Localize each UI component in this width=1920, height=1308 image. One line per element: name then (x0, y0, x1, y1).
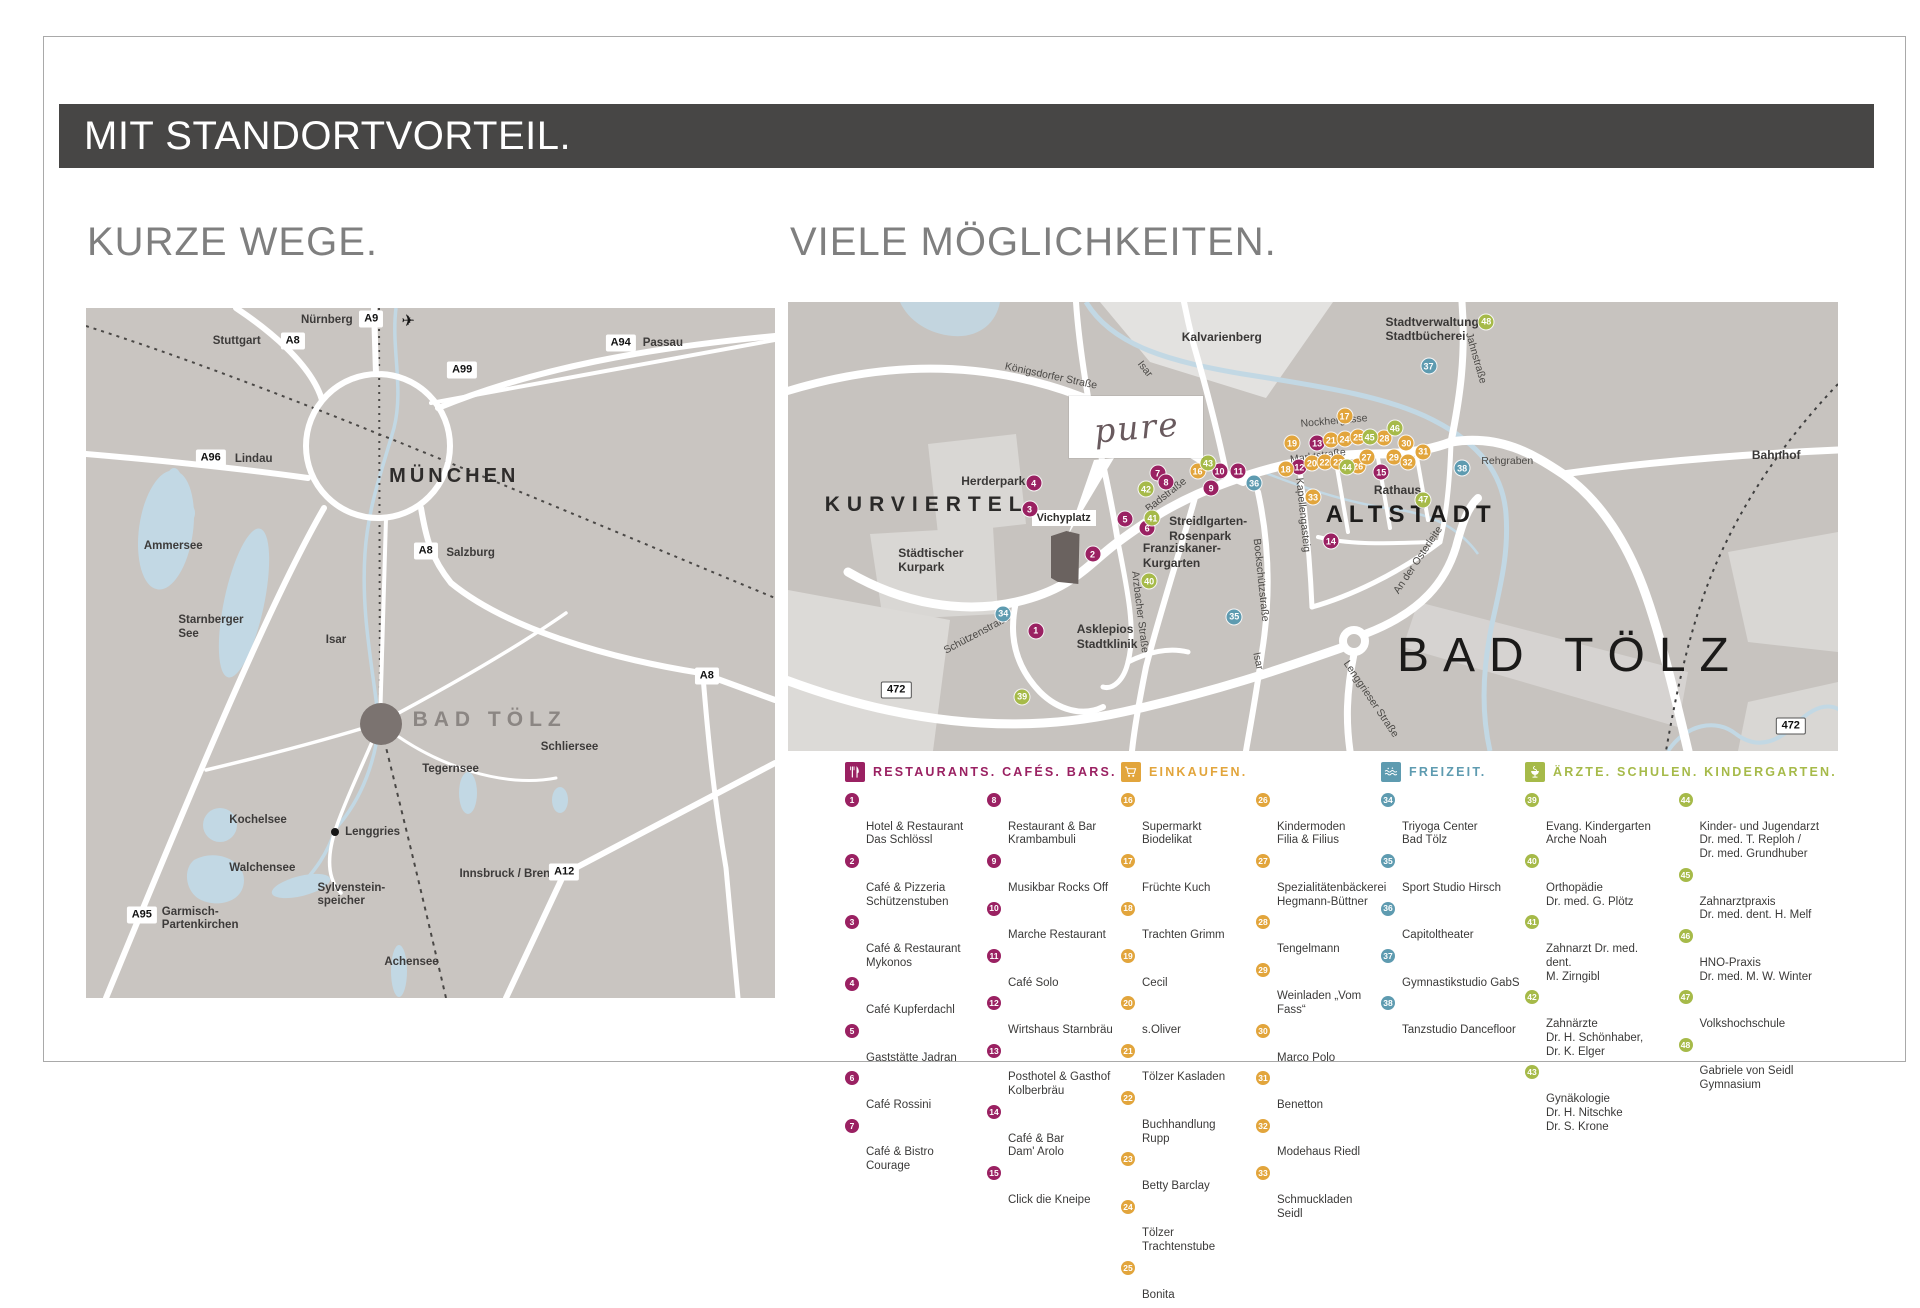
legend-item: 24 Tölzer Trachtenstube (1121, 1200, 1244, 1255)
legend-header: RESTAURANTS. CAFÉS. BARS. (845, 762, 1117, 782)
legend-item-number: 28 (1256, 915, 1270, 929)
legend-item-number: 5 (845, 1024, 859, 1038)
place-label: Salzburg (446, 547, 495, 560)
legend-item: 45 Zahnarztpraxis Dr. med. dent. H. Melf (1679, 868, 1821, 923)
legend-item-number: 27 (1256, 854, 1270, 868)
motorway-badge: A9 (359, 311, 383, 328)
legend-item-text: Café & Bar Dam' Arolo (1008, 1133, 1064, 1159)
legend-item-text: Hotel & Restaurant Das Schlössl (866, 821, 963, 847)
legend-item: 32 Modehaus Riedl (1256, 1119, 1379, 1160)
legend-item: 5 Gaststätte Jadran (845, 1024, 975, 1065)
legend-item-number: 12 (987, 996, 1001, 1010)
legend-item: 17 Früchte Kuch (1121, 854, 1244, 895)
bad-toelz-dot (360, 703, 402, 745)
legend-item: 19 Cecil (1121, 949, 1244, 990)
poi-badge-leisure: 35 (1227, 609, 1242, 624)
motorway-badge: A8 (414, 542, 438, 559)
poi-badge-shopping: 24 (1337, 432, 1352, 447)
place-label: Starnberger See (178, 614, 243, 640)
legend-item-text: Café & Restaurant Mykonos (866, 943, 961, 969)
legend-item: 22 Buchhandlung Rupp (1121, 1091, 1244, 1146)
legend-item-text: Tengelmann (1277, 943, 1340, 955)
legend-item: 9 Musikbar Rocks Off (987, 854, 1117, 895)
legend-item: 43 Gynäkologie Dr. H. Nitschke Dr. S. Kr… (1525, 1065, 1667, 1134)
legend-item-text: Café & Bistro Courage (866, 1146, 934, 1172)
legend-item-number: 33 (1256, 1166, 1270, 1180)
legend-item-text: Zahnärzte Dr. H. Schönhaber, Dr. K. Elge… (1546, 1018, 1643, 1058)
legend-title: ÄRZTE. SCHULEN. KINDERGARTEN. (1553, 765, 1837, 779)
bad-toelz-label: BAD TÖLZ (413, 708, 567, 732)
legend-item-number: 21 (1121, 1044, 1135, 1058)
place-label: Lindau (235, 453, 273, 466)
legend-item: 7 Café & Bistro Courage (845, 1119, 975, 1174)
poi-badge-shopping: 27 (1359, 450, 1374, 465)
legend-item-number: 13 (987, 1044, 1001, 1058)
legend-item-text: Modehaus Riedl (1277, 1146, 1360, 1158)
legend-item-number: 7 (845, 1119, 859, 1133)
legend-item: 47 Volkshochschule (1679, 990, 1821, 1031)
motorway-badge: A96 (196, 449, 226, 466)
legend-item: 38 Tanzstudio Dancefloor (1381, 996, 1527, 1037)
legend-item-text: s.Oliver (1142, 1024, 1181, 1036)
legend-item-text: Triyoga Center Bad Tölz (1402, 821, 1478, 847)
region-map: MÜNCHEN BAD TÖLZ ✈ Nürnberg Stuttgart Pa… (86, 308, 775, 998)
munich-label: MÜNCHEN (389, 465, 519, 488)
legend-item-text: Zahnarztpraxis Dr. med. dent. H. Melf (1700, 896, 1812, 922)
legend-item-text: Buchhandlung Rupp (1142, 1119, 1216, 1145)
legend-header: ÄRZTE. SCHULEN. KINDERGARTEN. (1525, 762, 1820, 782)
legend-item: 41 Zahnarzt Dr. med. dent. M. Zirngibl (1525, 915, 1667, 984)
motorway-badge: A12 (549, 864, 579, 881)
poi-badge-leisure: 36 (1247, 476, 1262, 491)
legend-item: 23 Betty Barclay (1121, 1152, 1244, 1193)
legend-item-text: Click die Kneipe (1008, 1194, 1090, 1206)
legend-item-number: 24 (1121, 1200, 1135, 1214)
pure-logo: pure (1092, 404, 1181, 450)
pure-logo-box: pure (1069, 396, 1203, 458)
fork-knife-icon (845, 762, 865, 782)
poi-badge-shopping: 18 (1278, 462, 1293, 477)
poi-badge-health: 47 (1416, 492, 1431, 507)
legend-header: EINKAUFEN. (1121, 762, 1379, 782)
legend-item: 13 Posthotel & Gasthof Kolberbräu (987, 1044, 1117, 1099)
area-label: Herderpark (961, 474, 1025, 488)
legend-item: 11 Café Solo (987, 949, 1117, 990)
legend-item-number: 3 (845, 915, 859, 929)
motorway-badge: A8 (695, 667, 719, 684)
motorway-badge: A94 (606, 334, 636, 351)
legend-item-number: 37 (1381, 949, 1395, 963)
legend-item-number: 20 (1121, 996, 1135, 1010)
poi-badge-leisure: 34 (996, 606, 1011, 621)
route-badge: 472 (1776, 718, 1806, 735)
legend-item-text: Benetton (1277, 1099, 1323, 1111)
legend-item-number: 45 (1679, 868, 1693, 882)
legend-item-number: 16 (1121, 793, 1135, 807)
legend-item-text: Posthotel & Gasthof Kolberbräu (1008, 1071, 1110, 1097)
poi-badge-leisure: 38 (1455, 461, 1470, 476)
place-label: Isar (326, 634, 346, 647)
legend-item: 40 Orthopädie Dr. med. G. Plötz (1525, 854, 1667, 909)
area-label: Bahnhof (1752, 448, 1801, 462)
legend-item-number: 29 (1256, 963, 1270, 977)
legend-item: 14 Café & Bar Dam' Arolo (987, 1105, 1117, 1160)
bad-toelz-city-label: BAD TÖLZ (1397, 628, 1743, 683)
legend-item-text: Spezialitätenbäckerei Hegmann-Büttner (1277, 882, 1386, 908)
legend-item-number: 11 (987, 949, 1001, 963)
legend-item-text: Trachten Grimm (1142, 929, 1225, 941)
legend-item-number: 9 (987, 854, 1001, 868)
legend-item-number: 48 (1679, 1038, 1693, 1052)
legend-title: EINKAUFEN. (1149, 765, 1247, 779)
legend-item-text: Marche Restaurant (1008, 929, 1106, 941)
place-label: Walchensee (229, 862, 295, 875)
legend-item: 35 Sport Studio Hirsch (1381, 854, 1527, 895)
legend-item-text: Kindermoden Filia & Filius (1277, 821, 1345, 847)
legend-item-number: 34 (1381, 793, 1395, 807)
legend-item: 25 Bonita (1121, 1261, 1244, 1302)
poi-badge-shopping: 31 (1416, 444, 1431, 459)
legend-item-text: Bonita (1142, 1289, 1175, 1301)
region-map-graphics (86, 308, 775, 998)
page-title: MIT STANDORTVORTEIL. (84, 114, 571, 159)
legend-item-text: Cecil (1142, 977, 1168, 989)
legend-item-number: 46 (1679, 929, 1693, 943)
legend-item: 48 Gabriele von Seidl Gymnasium (1679, 1038, 1821, 1093)
legend-item: 3 Café & Restaurant Mykonos (845, 915, 975, 970)
legend-item-number: 17 (1121, 854, 1135, 868)
legend-item: 8 Restaurant & Bar Krambambuli (987, 793, 1117, 848)
legend-item-text: Schmuckladen Seidl (1277, 1194, 1352, 1220)
legend-item: 29 Weinladen „Vom Fass“ (1256, 963, 1379, 1018)
vichyplatz-label: Vichyplatz (1032, 510, 1096, 526)
legend-item-text: Marco Polo (1277, 1052, 1335, 1064)
title-bar: MIT STANDORTVORTEIL. (59, 104, 1874, 168)
legend-item-text: Kinder- und Jugendarzt Dr. med. T. Replo… (1700, 821, 1820, 861)
place-label: Sylvenstein- speicher (318, 882, 386, 908)
hygieia-bowl-icon (1525, 762, 1545, 782)
route-badge: 472 (881, 682, 911, 699)
legend-item-number: 41 (1525, 915, 1539, 929)
legend-item: 46 HNO-Praxis Dr. med. M. W. Winter (1679, 929, 1821, 984)
city-map: KURVIERTEL ALTSTADT BAD TÖLZ Vichyplatz … (788, 302, 1838, 751)
legend-item-number: 39 (1525, 793, 1539, 807)
legend-item: 4 Café Kupferdachl (845, 977, 975, 1018)
legend-item-number: 6 (845, 1071, 859, 1085)
poi-badge-health: 40 (1142, 574, 1157, 589)
poi-badge-restaurant: 5 (1118, 512, 1133, 527)
legend-item-text: Weinladen „Vom Fass“ (1277, 990, 1361, 1016)
legend-item: 26 Kindermoden Filia & Filius (1256, 793, 1379, 848)
place-label: Tegernsee (422, 763, 479, 776)
motorway-badge: A8 (281, 333, 305, 350)
legend-item: 12 Wirtshaus Starnbräu (987, 996, 1117, 1037)
map-legend: RESTAURANTS. CAFÉS. BARS. 1 Hotel & Rest… (845, 762, 1820, 1022)
legend-item-text: Café Rossini (866, 1099, 931, 1111)
legend-item: 31 Benetton (1256, 1071, 1379, 1112)
place-label: Passau (643, 337, 683, 350)
place-label: Nürnberg (301, 314, 353, 327)
poi-badge-shopping: 19 (1285, 436, 1300, 451)
legend-item: 1 Hotel & Restaurant Das Schlössl (845, 793, 975, 848)
airport-icon: ✈ (402, 311, 415, 331)
legend-item: 21 Tölzer Kasladen (1121, 1044, 1244, 1085)
poi-badge-restaurant: 3 (1022, 502, 1037, 517)
poi-badge-health: 45 (1362, 430, 1377, 445)
legend-item: 33 Schmuckladen Seidl (1256, 1166, 1379, 1221)
area-label: Streidlgarten- Rosenpark (1169, 514, 1247, 543)
legend-item: 16 Supermarkt Biodelikat (1121, 793, 1244, 848)
legend-item-number: 25 (1121, 1261, 1135, 1275)
legend-item-number: 26 (1256, 793, 1270, 807)
legend-item-number: 1 (845, 793, 859, 807)
legend-item-number: 19 (1121, 949, 1135, 963)
legend-item-number: 43 (1525, 1065, 1539, 1079)
poi-badge-restaurant: 4 (1026, 476, 1041, 491)
poi-badge-restaurant: 15 (1374, 465, 1389, 480)
poi-badge-health: 41 (1145, 511, 1160, 526)
legend-item-text: Supermarkt Biodelikat (1142, 821, 1201, 847)
legend-item-text: Tanzstudio Dancefloor (1402, 1024, 1516, 1036)
legend-item-number: 35 (1381, 854, 1395, 868)
place-label: Lenggries (345, 826, 400, 839)
legend-item-number: 42 (1525, 990, 1539, 1004)
legend-category-restaurants: RESTAURANTS. CAFÉS. BARS. 1 Hotel & Rest… (845, 762, 1117, 1214)
area-label: Städtischer Kurpark (898, 546, 963, 575)
legend-item-number: 32 (1256, 1119, 1270, 1133)
shopping-cart-icon (1121, 762, 1141, 782)
legend-item-text: Restaurant & Bar Krambambuli (1008, 821, 1096, 847)
legend-item: 27 Spezialitätenbäckerei Hegmann-Büttner (1256, 854, 1379, 909)
altstadt-label: ALTSTADT (1326, 501, 1497, 529)
heading-short-distances: KURZE WEGE. (87, 220, 378, 265)
legend-item-text: Betty Barclay (1142, 1180, 1210, 1192)
legend-item: 18 Trachten Grimm (1121, 902, 1244, 943)
legend-item-text: Gynäkologie Dr. H. Nitschke Dr. S. Krone (1546, 1093, 1623, 1133)
legend-item-text: Zahnarzt Dr. med. dent. M. Zirngibl (1546, 943, 1638, 983)
legend-item-text: Gaststätte Jadran (866, 1052, 957, 1064)
legend-item: 37 Gymnastikstudio GabS (1381, 949, 1527, 990)
legend-item-text: Früchte Kuch (1142, 882, 1210, 894)
legend-item-text: Evang. Kindergarten Arche Noah (1546, 821, 1651, 847)
waves-icon (1381, 762, 1401, 782)
poi-badge-restaurant: 1 (1028, 623, 1043, 638)
motorway-badge: A95 (127, 907, 157, 924)
legend-category-health-schools: ÄRZTE. SCHULEN. KINDERGARTEN. 39 Evang. … (1525, 762, 1820, 1140)
legend-item: 34 Triyoga Center Bad Tölz (1381, 793, 1527, 848)
legend-category-leisure: FREIZEIT. 34 Triyoga Center Bad Tölz 35 … (1381, 762, 1527, 1044)
poi-badge-restaurant: 2 (1085, 547, 1100, 562)
place-label: Schliersee (541, 741, 599, 754)
place-label: Stuttgart (213, 335, 261, 348)
poi-badge-restaurant: 14 (1323, 534, 1338, 549)
kurviertel-label: KURVIERTEL (825, 493, 1029, 517)
legend-item-number: 44 (1679, 793, 1693, 807)
legend-item-text: Tölzer Kasladen (1142, 1071, 1225, 1083)
legend-item-number: 38 (1381, 996, 1395, 1010)
poi-badge-health: 46 (1387, 421, 1402, 436)
legend-item-text: Café & Pizzeria Schützenstuben (866, 882, 948, 908)
area-label: Kalvarienberg (1182, 330, 1262, 344)
legend-category-shopping: EINKAUFEN. 16 Supermarkt Biodelikat 17 F… (1121, 762, 1379, 1308)
legend-item-text: Volkshochschule (1700, 1018, 1786, 1030)
place-label: Ammersee (144, 540, 203, 553)
legend-item-text: Wirtshaus Starnbräu (1008, 1024, 1113, 1036)
poi-badge-health: 39 (1015, 689, 1030, 704)
legend-item-text: Sport Studio Hirsch (1402, 882, 1501, 894)
legend-item-text: Musikbar Rocks Off (1008, 882, 1108, 894)
legend-item-number: 2 (845, 854, 859, 868)
legend-item-text: Tölzer Trachtenstube (1142, 1227, 1215, 1253)
poi-badge-health: 42 (1139, 482, 1154, 497)
poi-badge-shopping: 30 (1399, 436, 1414, 451)
legend-item-text: Gymnastikstudio GabS (1402, 977, 1520, 989)
poi-badge-shopping: 17 (1337, 409, 1352, 424)
legend-item-number: 47 (1679, 990, 1693, 1004)
street-label: Rehgraben (1481, 455, 1533, 467)
legend-item: 39 Evang. Kindergarten Arche Noah (1525, 793, 1667, 848)
legend-item: 30 Marco Polo (1256, 1024, 1379, 1065)
legend-item-number: 36 (1381, 902, 1395, 916)
legend-item-text: Gabriele von Seidl Gymnasium (1700, 1065, 1794, 1091)
legend-item: 36 Capitoltheater (1381, 902, 1527, 943)
poi-badge-shopping: 32 (1400, 455, 1415, 470)
legend-item: 15 Click die Kneipe (987, 1166, 1117, 1207)
legend-item-text: Capitoltheater (1402, 929, 1474, 941)
legend-item-number: 30 (1256, 1024, 1270, 1038)
legend-item-text: Café Kupferdachl (866, 1004, 955, 1016)
poi-badge-restaurant: 11 (1231, 464, 1246, 479)
legend-item-number: 4 (845, 977, 859, 991)
area-label: Asklepios Stadtklinik (1077, 622, 1138, 651)
area-label: Rathaus (1374, 483, 1421, 497)
legend-item-text: Café Solo (1008, 977, 1059, 989)
legend-item-number: 8 (987, 793, 1001, 807)
legend-item-text: Orthopädie Dr. med. G. Plötz (1546, 882, 1634, 908)
legend-header: FREIZEIT. (1381, 762, 1527, 782)
pure-building (1051, 531, 1080, 584)
legend-item-number: 23 (1121, 1152, 1135, 1166)
legend-item: 44 Kinder- und Jugendarzt Dr. med. T. Re… (1679, 793, 1821, 862)
legend-item-number: 40 (1525, 854, 1539, 868)
legend-item: 2 Café & Pizzeria Schützenstuben (845, 854, 975, 909)
legend-item-number: 14 (987, 1105, 1001, 1119)
city-map-graphics (788, 302, 1838, 751)
legend-item-number: 31 (1256, 1071, 1270, 1085)
poi-badge-shopping: 33 (1306, 490, 1321, 505)
area-label: Franziskaner- Kurgarten (1143, 541, 1221, 570)
legend-item: 6 Café Rossini (845, 1071, 975, 1112)
legend-item-number: 18 (1121, 902, 1135, 916)
poi-badge-restaurant: 8 (1159, 475, 1174, 490)
legend-title: RESTAURANTS. CAFÉS. BARS. (873, 765, 1117, 779)
place-label: Garmisch- Partenkirchen (162, 906, 239, 932)
legend-item: 10 Marche Restaurant (987, 902, 1117, 943)
legend-item-number: 15 (987, 1166, 1001, 1180)
poi-badge-health: 44 (1339, 460, 1354, 475)
legend-item-number: 10 (987, 902, 1001, 916)
poi-badge-restaurant: 9 (1204, 481, 1219, 496)
legend-item: 28 Tengelmann (1256, 915, 1379, 956)
place-label: Achensee (384, 956, 438, 969)
poi-badge-leisure: 37 (1421, 359, 1436, 374)
heading-many-possibilities: VIELE MÖGLICHKEITEN. (790, 220, 1277, 265)
legend-item: 20 s.Oliver (1121, 996, 1244, 1037)
place-label: Kochelsee (229, 814, 287, 827)
poi-badge-health: 48 (1479, 314, 1494, 329)
lenggries-dot (331, 828, 339, 836)
legend-item-text: HNO-Praxis Dr. med. M. W. Winter (1700, 957, 1812, 983)
legend-item-number: 22 (1121, 1091, 1135, 1105)
legend-item: 42 Zahnärzte Dr. H. Schönhaber, Dr. K. E… (1525, 990, 1667, 1059)
legend-title: FREIZEIT. (1409, 765, 1486, 779)
motorway-badge: A99 (447, 362, 477, 379)
